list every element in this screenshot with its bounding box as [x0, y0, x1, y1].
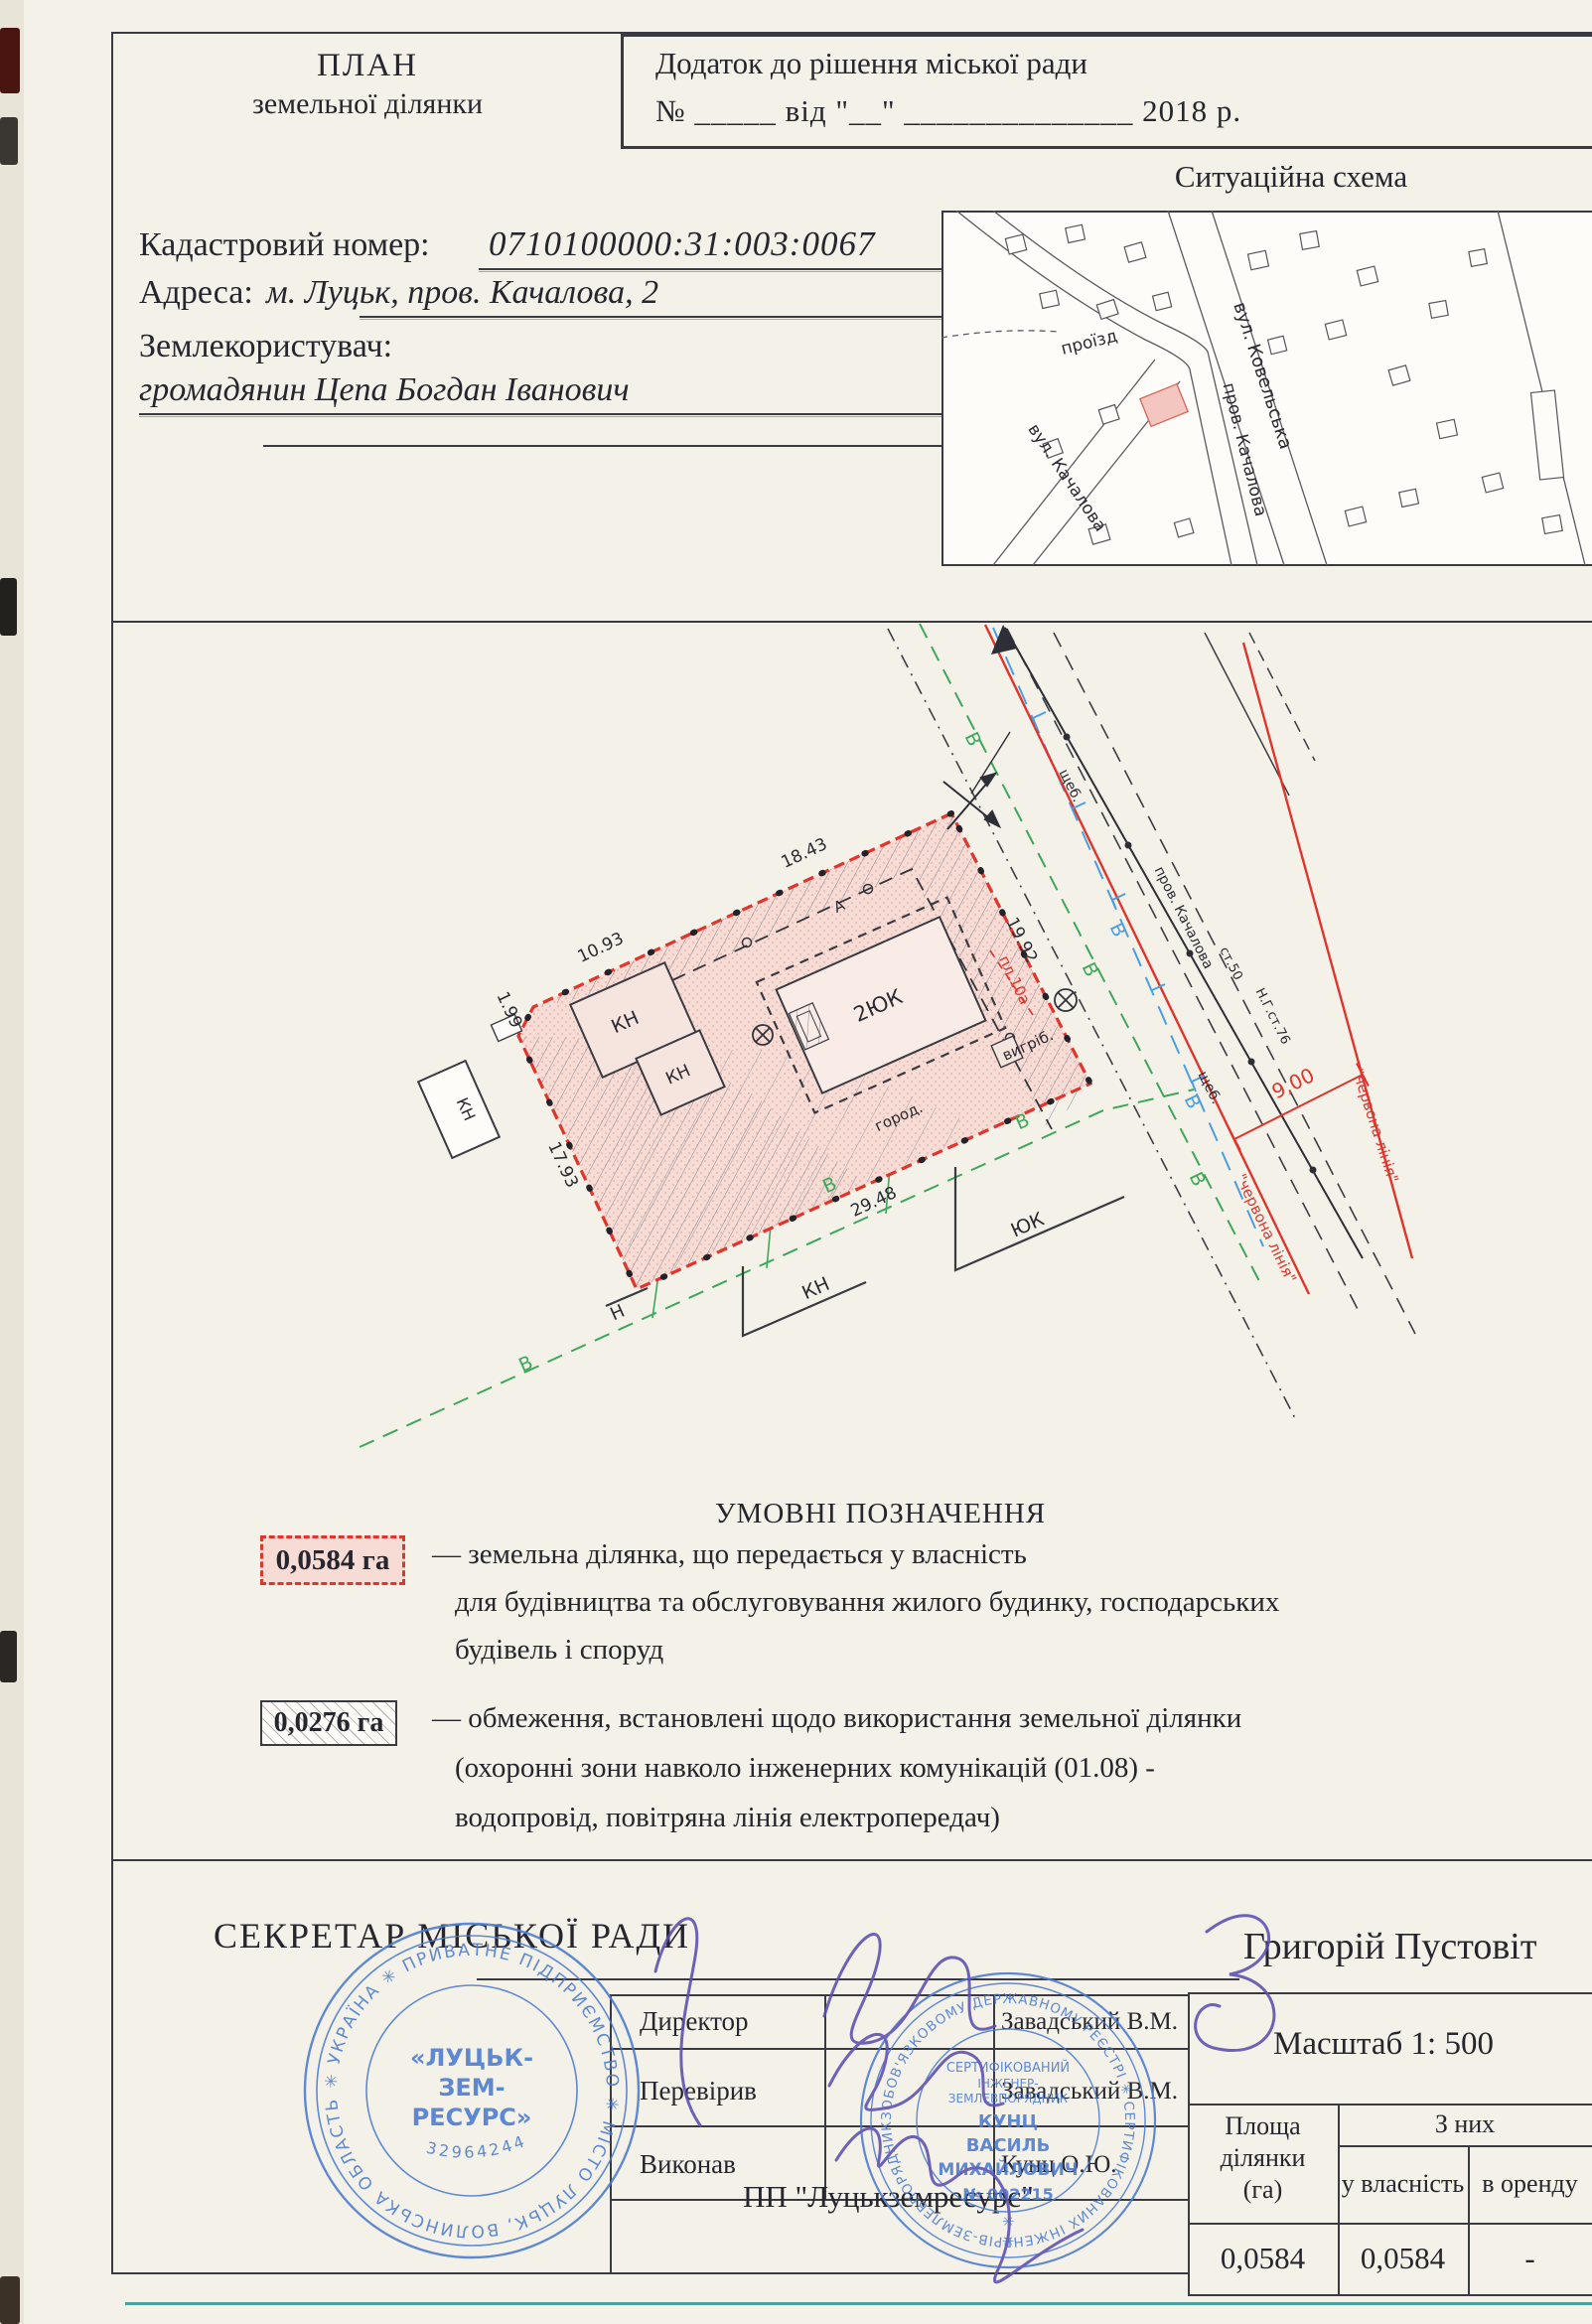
area-value-rent: - — [1468, 2241, 1592, 2276]
area-span-header: З них — [1338, 2109, 1592, 2139]
scan-artifact — [0, 117, 18, 165]
area-table-line — [1188, 2223, 1592, 2225]
scan-bottom-edge — [125, 2302, 1592, 2305]
company-stamp-center: «ЛУЦЬК- ЗЕМ- РЕСУРС» — [410, 2044, 533, 2131]
legend-item2-line3: водопровід, повітряна лінія електроперед… — [455, 1802, 1000, 1834]
sig-table-line — [610, 2048, 1188, 2050]
v-label: В — [1180, 1091, 1205, 1112]
page-title-line1: ПЛАН — [238, 48, 497, 84]
appendix-line1: Додаток до рішення міської ради — [655, 46, 1087, 81]
stamp-star: ✳ — [1002, 2233, 1015, 2251]
signature-checked — [829, 2034, 1003, 2109]
company-stamp — [305, 1924, 639, 2257]
legend-item2-line2: (охоронні зони навколо інженерних комуні… — [455, 1752, 1155, 1785]
secretary-name: Григорій Пустовіт — [1243, 1925, 1536, 1968]
address-underline-fringe — [360, 319, 1038, 320]
address-value: м. Луцьк, пров. Качалова, 2 — [266, 274, 658, 312]
doc-border-bottom — [111, 2272, 1190, 2274]
company-stamp-ring-text: ✳ УКРАЇНА ✳ ПРИВАТНЕ ПІДПРИЄМСТВО ✳ МІСТ… — [322, 1941, 622, 2241]
legend-title: УМОВНІ ПОЗНАЧЕННЯ — [715, 1498, 1046, 1530]
scan-artifact — [0, 1631, 17, 1682]
company-name: ПП "Луцькземресурс" — [743, 2179, 1034, 2215]
dim-upper-left: 10.93 — [575, 929, 628, 967]
address-underline — [360, 316, 1038, 318]
neighbor-yuk: ЮК — [1008, 1208, 1048, 1241]
stamp-text: РЕСУРС» — [412, 2104, 532, 2131]
legend-item2-line1: — обмеження, встановлені щодо використан… — [432, 1702, 1241, 1735]
area-col1-line3: (га) — [1188, 2175, 1338, 2205]
scanned-land-plan-page: { "header": { "title_line1": "ПЛАН", "ti… — [0, 0, 1592, 2324]
v-label: В — [1185, 1169, 1210, 1190]
scale-label: Масштаб 1: 500 — [1273, 2026, 1494, 2063]
stamp-star: ✳ — [1002, 2213, 1015, 2231]
area-value-own: 0,0584 — [1338, 2241, 1468, 2276]
area-table-line — [1188, 2294, 1592, 2296]
legend-area-restricted: 0,0276 га — [274, 1707, 384, 1738]
v-label: В — [960, 729, 985, 750]
label-prov-kachalova: пров. Качалова — [1151, 864, 1217, 971]
landuser-value: громадянин Цепа Богдан Іванович — [139, 371, 630, 409]
label-st50: ст.50 — [1216, 944, 1244, 982]
sig-table-line — [993, 1994, 995, 2199]
area-table-line — [1188, 1992, 1592, 1994]
cadastral-underline-fringe — [479, 271, 1020, 272]
legend-item1-line3: будівель і споруд — [455, 1634, 663, 1667]
sig-row-name-checked: Завадський В.М. — [1001, 2078, 1178, 2106]
address-label: Адреса: — [139, 274, 253, 312]
area-table-line — [1188, 2104, 1592, 2106]
sig-row-label-executed: Виконав — [640, 2149, 736, 2180]
blue-v-labels: В В — [1105, 920, 1205, 1112]
v-label: В — [515, 1352, 536, 1377]
area-value-total: 0,0584 — [1188, 2241, 1338, 2276]
stamp-ring-text: ✳ УКРАЇНА ✳ ПРИВАТНЕ ПІДПРИЄМСТВО ✳ МІСТ… — [322, 1941, 622, 2241]
area-table-line — [1338, 2145, 1592, 2147]
dim-top: 18.43 — [779, 834, 831, 873]
stamp-text: «ЛУЦЬК- — [410, 2044, 533, 2072]
sig-table-line — [824, 1994, 826, 2199]
sig-table-line — [610, 1994, 1188, 1996]
area-sub-rent: в оренду — [1468, 2169, 1592, 2199]
scan-left-margin — [0, 0, 24, 2324]
cadastral-label: Кадастровий номер: — [139, 226, 430, 264]
plan-drawing: 18.43 10.93 1.99 17.93 29.48 19.92 КН КН… — [111, 623, 1592, 1480]
scan-artifact — [0, 28, 20, 93]
appendix-line2: № _____ від "__" ______________ 2018 р. — [655, 93, 1241, 129]
section-divider-bottom — [111, 1859, 1592, 1861]
secretary-title: СЕКРЕТАР МІСЬКОЇ РАДИ — [214, 1915, 690, 1957]
landuser-underline-fringe — [139, 416, 1053, 417]
legend-item1-line2: для будівництва та обслуговування жилого… — [455, 1586, 1279, 1619]
sig-row-name-executed: Кунц О.Ю. — [1001, 2151, 1117, 2179]
area-sub-own: у власність — [1338, 2169, 1468, 2199]
sig-row-name-director: Завадський В.М. — [1001, 2008, 1178, 2036]
landuser-label: Землекористувач: — [139, 328, 392, 365]
label-ng-st76: Н.Г.ст.76 — [1252, 986, 1293, 1047]
scan-artifact — [0, 2276, 20, 2324]
cadastral-value: 0710100000:31:003:0067 — [489, 224, 875, 264]
area-col1-line2: ділянки — [1188, 2143, 1338, 2173]
stamp-text: СЕРТИФІКОВАНИЙ — [946, 2060, 1070, 2076]
stamp-text: ЗЕМ- — [438, 2074, 505, 2102]
v-label: В — [1078, 959, 1102, 980]
sig-row-label-director: Директор — [640, 2006, 749, 2037]
sit-schema-title: Ситуаційна схема — [1083, 159, 1500, 195]
stamp-text: КУНЦ — [978, 2111, 1038, 2132]
legend-swatch-restricted: 0,0276 га — [260, 1700, 397, 1746]
legend-area-owned: 0,0584 га — [276, 1544, 390, 1576]
red-line-label-2: "червона лінія" — [1349, 1067, 1402, 1186]
v-label: В — [1105, 920, 1130, 941]
sit-schema-map: проїзд пров. Качалова вул. Качалова вул.… — [941, 211, 1592, 566]
sig-table-line — [610, 1994, 612, 2273]
signature-director — [824, 1935, 995, 2044]
v-label: В — [1012, 1109, 1033, 1134]
sig-row-label-checked: Перевірив — [640, 2076, 757, 2106]
secretary-sign-line — [477, 1978, 1239, 1980]
label-n: Н — [607, 1301, 628, 1326]
empty-underline — [263, 445, 1053, 447]
landuser-underline — [139, 413, 1053, 415]
legend-item1-line1: — земельна ділянка, що передається у вла… — [432, 1538, 1027, 1571]
area-col1-line1: Площа — [1188, 2111, 1338, 2141]
legend-swatch-owned: 0,0584 га — [260, 1535, 405, 1585]
scan-artifact — [0, 578, 17, 636]
page-title-line2: земельної ділянки — [189, 87, 546, 121]
stamp-code-text: 32964244 — [425, 2131, 530, 2162]
company-stamp-code: 32964244 — [425, 2131, 530, 2162]
cadastral-underline — [479, 268, 1020, 270]
red-line-label-1: "червона лінія" — [1231, 1171, 1300, 1286]
sig-table-line — [610, 2125, 1188, 2127]
